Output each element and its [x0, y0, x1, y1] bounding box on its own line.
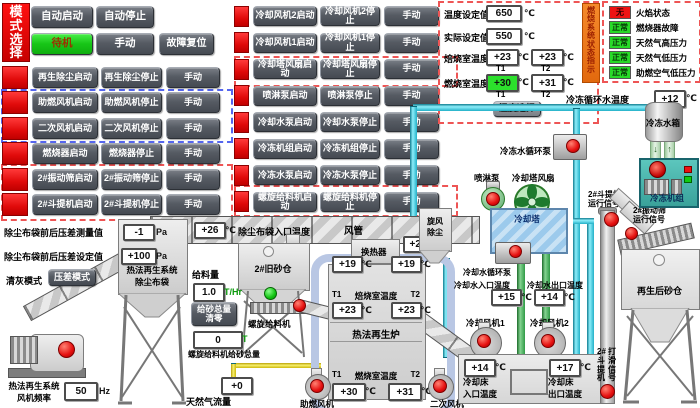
status-lamp: [234, 32, 249, 53]
t2-label: T2: [411, 290, 420, 302]
clean-mode-button[interactable]: 压差模式: [48, 269, 96, 286]
start-button[interactable]: 螺旋给料机启动: [253, 192, 317, 212]
heat-exchanger-label: 换热器: [361, 246, 387, 258]
status-lamp: [234, 6, 249, 27]
standby-button[interactable]: 待机: [31, 33, 93, 55]
start-button[interactable]: 冷却风机1启动: [253, 33, 317, 53]
temp-set-label: 温度设定值: [444, 8, 489, 21]
control-row: 冷冻水泵启动 冷冻水泵停止 手动: [233, 164, 455, 186]
cooling-pump-run-dot: [509, 245, 522, 258]
cooling-fan2-run-dot: [541, 334, 555, 348]
auto-stop-button[interactable]: 自动停止: [96, 6, 154, 28]
status-lamp: [2, 142, 28, 165]
gas-pipe-h: [231, 363, 321, 368]
t1-label: T1: [496, 90, 505, 99]
chilled-water-pipe-conn: [573, 218, 594, 224]
stop-button[interactable]: 冷却水泵停止: [320, 112, 380, 132]
manual-button[interactable]: 手动: [384, 6, 439, 26]
regen-blower-motor: [10, 336, 38, 364]
stop-button[interactable]: 助燃风机停止: [101, 92, 162, 113]
aux-fan-label: 助燃风机: [287, 398, 347, 408]
unit-celsius: ℃: [361, 305, 372, 316]
unit-celsius: ℃: [686, 93, 697, 104]
duct-label: 风管: [344, 223, 363, 237]
stop-button[interactable]: 冷却风机1停止: [320, 33, 380, 53]
unit-pa: Pa: [156, 251, 167, 261]
bed-in-value: +14: [464, 359, 496, 377]
stop-button[interactable]: 喷淋泵停止: [320, 86, 380, 106]
start-button[interactable]: 冷冻机组启动: [253, 139, 317, 159]
status-lamp: [234, 191, 249, 212]
status-lamp: [234, 59, 249, 80]
status-badge: 正常: [609, 51, 631, 64]
roast-temp-row: T1 焙烧室温度 T2: [332, 290, 420, 302]
control-row: 再生除尘启动 再生除尘停止 手动: [0, 66, 230, 89]
manual-button[interactable]: 手动: [384, 86, 439, 106]
control-row: 冷冻机组启动 冷冻机组停止 手动: [233, 138, 455, 160]
cooling-tower-label: 冷却塔: [492, 213, 562, 225]
stop-button[interactable]: 2#斗提机停止: [101, 194, 162, 215]
mode-select-label: 模式选择: [9, 5, 23, 60]
old-silo-label: 2#旧砂仓: [240, 262, 306, 275]
stop-button[interactable]: 2#振动筛停止: [101, 169, 162, 190]
cooling-fan1-run-dot: [477, 334, 491, 348]
chilled-water-pipe-v-left: [410, 106, 417, 218]
status-lamp: [2, 168, 28, 191]
unit-celsius: ℃: [563, 77, 574, 88]
status-lamp: [2, 117, 28, 140]
roast-t2-value: +23: [391, 302, 422, 319]
elevator-slip-dot: [600, 384, 615, 399]
duct-inlet-temp: +26: [194, 222, 226, 239]
regen-blower-body: [30, 334, 84, 372]
stop-button[interactable]: 冷却塔风扇停止: [320, 59, 380, 79]
t1-label: T1: [496, 64, 505, 73]
control-row: 2#振动筛启动 2#振动筛停止 手动: [0, 168, 230, 191]
unit-celsius: ℃: [518, 77, 529, 88]
chiller-run-light: [684, 176, 692, 183]
control-row: 冷却风机2启动 冷却风机2停止 手动: [233, 5, 455, 27]
unit-celsius: ℃: [225, 225, 236, 236]
chilled-water-pipe-v-right: [587, 218, 594, 358]
roast-label: 焙烧室温度: [355, 290, 398, 302]
temp-actual-label: 实际设定值: [444, 31, 489, 44]
start-button[interactable]: 冷却风机2启动: [253, 6, 317, 26]
stop-button[interactable]: 冷却风机2停止: [320, 6, 380, 26]
left-control-grid: 再生除尘启动 再生除尘停止 手动 助燃风机启动 助燃风机停止 手动 二次风机启动…: [0, 66, 230, 216]
stop-button[interactable]: 二次风机停止: [101, 118, 162, 139]
screen-run-dot: [625, 227, 638, 240]
unit-celsius: ℃: [524, 31, 535, 42]
dp-set-label: 除尘布袋前后压差设定值: [4, 250, 103, 263]
burn-temp-label: 燃烧室温度: [444, 77, 489, 90]
roast-temp-label: 焙烧室温度: [444, 52, 489, 65]
bed-icon: [510, 369, 548, 395]
regen-silo-legs: [623, 308, 697, 406]
temp-set-value[interactable]: 650: [486, 5, 522, 22]
aux-fan-run-dot: [310, 379, 324, 393]
cooling-pump-label: 冷却水循环泵: [463, 267, 511, 278]
elevator-slip-label-1: 2#斗提机: [597, 348, 607, 383]
temp-actual-value: 550: [486, 28, 522, 45]
manual-button[interactable]: 手动: [166, 92, 220, 113]
burn-temp-row: T1 燃烧室温度 T2: [332, 370, 420, 382]
feeder-run-dot: [293, 299, 306, 312]
chilled-pump-run-dot: [566, 139, 580, 153]
manual-button[interactable]: 手动: [166, 169, 220, 190]
burn-t2-value: +31: [388, 383, 422, 401]
chiller-alarm-light: [684, 166, 692, 173]
bed-out-value: +17: [549, 359, 581, 377]
control-row: 冷却风机1启动 冷却风机1停止 手动: [233, 32, 455, 54]
bed-in-label: 冷却床 入口温度: [463, 376, 497, 400]
manual-mode-button[interactable]: 手动: [96, 33, 154, 55]
furnace-divider-top: [330, 322, 422, 323]
status-row: 正常 燃烧器故障: [609, 22, 699, 33]
chilled-water-tank-label: 冷冻水箱: [644, 117, 682, 129]
stop-button[interactable]: 再生除尘停止: [101, 67, 162, 88]
bed-out-label: 冷却床 出口温度: [548, 376, 582, 400]
regen-blower-run-dot: [58, 341, 75, 358]
start-button[interactable]: 二次风机启动: [32, 118, 98, 139]
t1-label: T1: [332, 290, 341, 302]
t2-label: T2: [541, 90, 550, 99]
manual-button[interactable]: 手动: [166, 118, 220, 139]
mode-select-tab: 模式选择: [2, 3, 30, 62]
status-label: 天然气高压力: [636, 37, 687, 49]
control-row: 二次风机启动 二次风机停止 手动: [0, 117, 230, 140]
dp-set-value[interactable]: +100: [121, 248, 157, 265]
status-row: 正常 助燃空气低压力: [609, 67, 699, 78]
burner-status-sidebar: 燃烧系统状态指示: [582, 3, 600, 83]
fan-freq-value[interactable]: 50: [64, 382, 98, 401]
start-button[interactable]: 冷冻水泵启动: [253, 165, 317, 185]
feed-total-label: 螺旋给料机给砂总量: [188, 349, 260, 360]
status-lamp: [2, 66, 28, 89]
status-label: 燃烧器故障: [636, 22, 679, 34]
burn-label: 燃烧室温度: [355, 370, 398, 382]
fan-freq-label: 热法再生系统 风机频率: [6, 380, 62, 404]
control-row: 冷却塔风扇启动 冷却塔风扇停止 手动: [233, 58, 455, 80]
cw-in-value: +15: [491, 289, 522, 306]
unit-pa: Pa: [156, 227, 167, 237]
unit-thr: T/Hr: [224, 287, 242, 297]
silo-vent: [653, 254, 665, 266]
unit-celsius: ℃: [365, 386, 376, 397]
chiller-fan: [649, 161, 666, 178]
dp-meas-label: 除尘布袋前后压差测量值: [4, 226, 103, 239]
unit-celsius: ℃: [495, 362, 506, 373]
old-silo-vent: [263, 246, 274, 257]
cyclone-cone: [419, 250, 450, 264]
burner-status-sidebar-label: 燃烧系统状态指示: [587, 7, 596, 74]
furnace-label: 热法再生炉: [330, 327, 422, 341]
control-row: 2#斗提机启动 2#斗提机停止 手动: [0, 193, 230, 216]
gas-flow-value: +0: [221, 377, 253, 395]
secondary-fan-run-dot: [433, 379, 447, 393]
unit-celsius: ℃: [564, 292, 575, 303]
unit-celsius: ℃: [521, 292, 532, 303]
start-button[interactable]: 2#振动筛启动: [32, 169, 98, 190]
chilled-temp-label: 冷冻循环水温度: [566, 93, 629, 106]
burner-status-panel: 无 火焰状态 正常 燃烧器故障 正常 天然气高压力 正常 天然气低压力 正常 助…: [602, 1, 700, 83]
hx-t2-value: +19: [391, 256, 422, 273]
control-row: 助燃风机启动 助燃风机停止 手动: [0, 91, 230, 114]
baghouse-legs: [118, 293, 186, 406]
feed-total-value: 0: [193, 331, 243, 349]
t1-label: T1: [332, 370, 341, 382]
status-row: 无 火焰状态: [609, 7, 699, 18]
status-lamp: [2, 193, 28, 216]
cyclone-label: 旋风 除尘: [422, 216, 448, 238]
gas-flow-label: 天然气流量: [186, 395, 231, 408]
unit-celsius: ℃: [420, 305, 431, 316]
status-label: 火焰状态: [636, 7, 670, 19]
roast-t1-value: +23: [332, 302, 363, 319]
stop-button[interactable]: 螺旋给料机停止: [320, 192, 380, 212]
status-lamp: [234, 85, 249, 106]
stop-button[interactable]: 燃烧器停止: [101, 143, 162, 164]
old-silo-level-dot: [264, 287, 277, 300]
start-button[interactable]: 2#斗提机启动: [32, 194, 98, 215]
status-badge: 正常: [609, 36, 631, 49]
fault-reset-button[interactable]: 故障复位: [159, 33, 214, 55]
feeder-label: 螺旋给料机: [248, 318, 291, 330]
status-row: 正常 天然气高压力: [609, 37, 699, 48]
control-row: 冷却水泵启动 冷却水泵停止 手动: [233, 111, 455, 133]
tower-fan-label: 冷却塔风扇: [512, 172, 555, 184]
start-button[interactable]: 燃烧器启动: [32, 143, 98, 164]
clean-mode-label: 清灰模式: [6, 274, 42, 287]
unit-celsius: ℃: [518, 52, 529, 63]
screen-run-label: 2#振动筛 运行信号: [633, 206, 666, 224]
feed-total-reset-button[interactable]: 给砂总量 清零: [191, 302, 237, 326]
unit-celsius: ℃: [563, 52, 574, 63]
manual-button[interactable]: 手动: [166, 143, 220, 164]
baghouse-label: 热法再生系统 除尘布袋: [120, 264, 184, 288]
start-button[interactable]: 冷却水泵启动: [253, 112, 317, 132]
manual-button[interactable]: 手动: [384, 59, 439, 79]
status-label: 助燃空气低压力: [636, 67, 696, 79]
status-lamp: [234, 112, 249, 133]
manual-button[interactable]: 手动: [166, 194, 220, 215]
chiller-label: 冷冻机组: [640, 192, 694, 204]
t2-label: T2: [541, 64, 550, 73]
hmi-screen: 模式选择 自动启动 自动停止 待机 手动 故障复位 再生除尘启动 再生除尘停止 …: [0, 0, 700, 408]
manual-button[interactable]: 手动: [384, 33, 439, 53]
cw-out-value: +14: [534, 289, 565, 306]
manual-button[interactable]: 手动: [166, 67, 220, 88]
chilled-pump-label: 冷冻水循环泵: [500, 145, 551, 157]
start-button[interactable]: 再生除尘启动: [32, 67, 98, 88]
elevator-run-dot: [604, 212, 619, 227]
status-lamp: [234, 138, 249, 159]
status-row: 正常 天然气低压力: [609, 52, 699, 63]
status-badge: 正常: [609, 66, 631, 79]
unit-celsius: ℃: [361, 259, 372, 270]
start-button[interactable]: 助燃风机启动: [32, 92, 98, 113]
dp-meas-value: -1: [123, 224, 155, 241]
elevator-slip-label-2: 打滑信号: [608, 348, 618, 383]
status-label: 天然气低压力: [636, 52, 687, 64]
hx-t1-value: +19: [332, 256, 363, 273]
unit-hz: Hz: [99, 386, 110, 396]
start-button[interactable]: 冷却塔风扇启动: [253, 59, 317, 79]
feed-rate-value[interactable]: 1.0: [193, 283, 225, 302]
status-badge: 无: [609, 6, 631, 19]
start-button[interactable]: 喷淋泵启动: [253, 86, 317, 106]
spray-pump-run-dot: [486, 192, 500, 206]
stop-button[interactable]: 冷冻机组停止: [320, 139, 380, 159]
stop-button[interactable]: 冷冻水泵停止: [320, 165, 380, 185]
furnace-divider-bottom: [330, 341, 422, 342]
unit-t: T: [242, 334, 248, 344]
unit-celsius: ℃: [580, 362, 591, 373]
status-lamp: [234, 165, 249, 186]
unit-celsius: ℃: [524, 8, 535, 19]
control-row: 燃烧器启动 燃烧器停止 手动: [0, 142, 230, 165]
status-badge: 正常: [609, 21, 631, 34]
status-lamp: [2, 91, 28, 114]
auto-start-button[interactable]: 自动启动: [31, 6, 93, 28]
regen-sand-silo-label: 再生后砂仓: [623, 284, 696, 297]
t2-label: T2: [411, 370, 420, 382]
feed-rate-label: 给料量: [192, 268, 219, 281]
